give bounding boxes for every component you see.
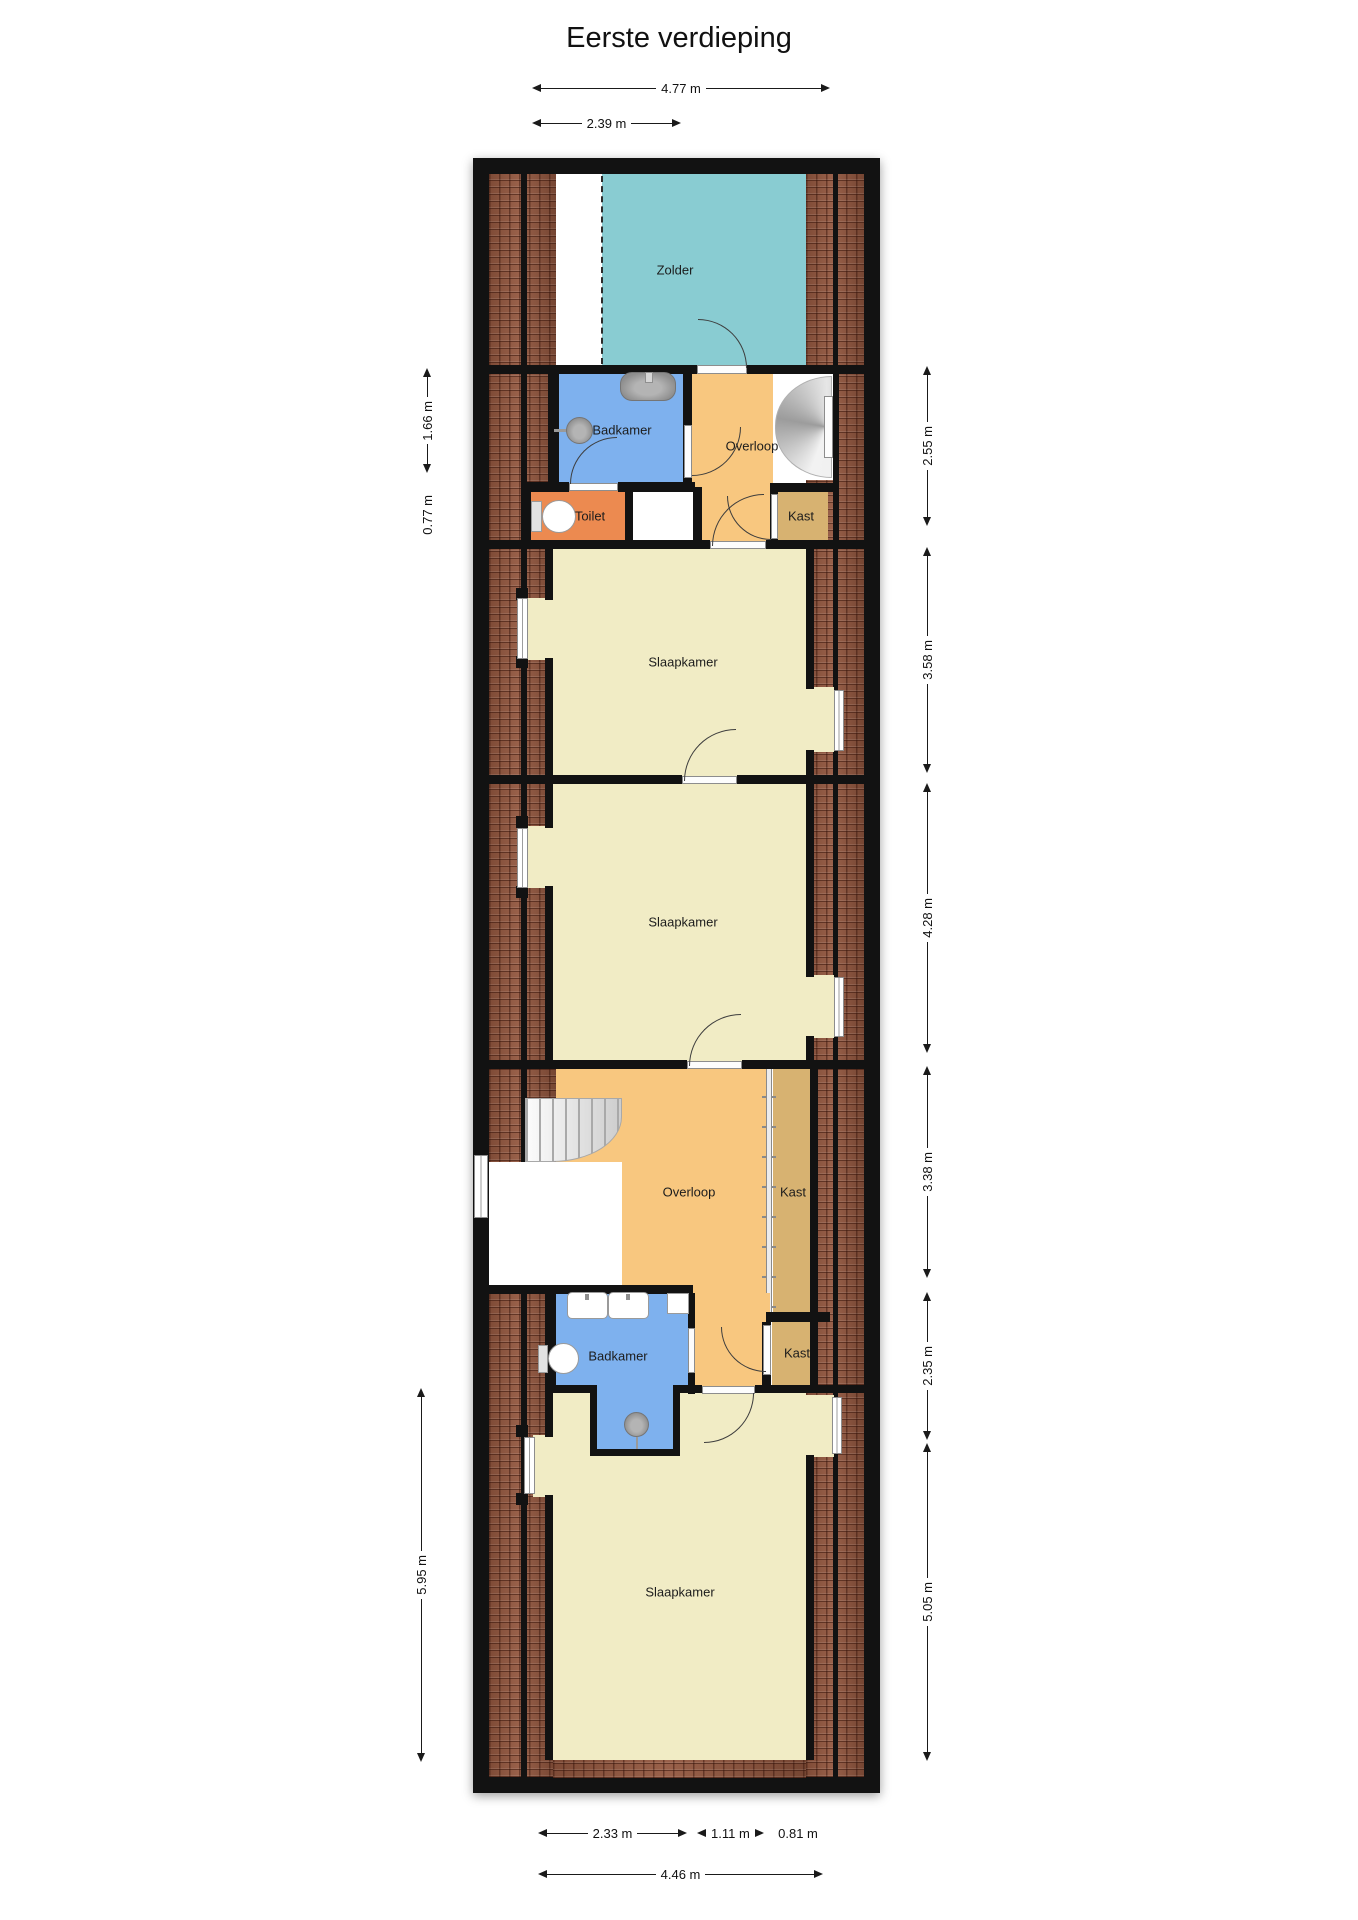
door-badkamer1-toilethal [569, 483, 618, 491]
dimension-bottom-111: 1.11 m [697, 1826, 765, 1840]
wall-s3-left-b [545, 1495, 553, 1760]
room-label-zolder: Zolder [657, 263, 694, 278]
wall-shower-nook-bottom [590, 1449, 680, 1456]
wall-sec3-bottom-a [489, 775, 682, 784]
room-label-kast-3: Kast [780, 1185, 806, 1200]
toilet-icon [542, 500, 576, 533]
wall-s1-right-a [806, 548, 814, 689]
wall-badkamer2-left [545, 1285, 556, 1393]
wall-sec2-bottom-b [766, 540, 864, 549]
window-icon [834, 690, 844, 751]
room-label-toilet: Toilet [575, 509, 605, 524]
arrow-left-icon [697, 1829, 706, 1837]
wall-sec4-bottom-b [742, 1060, 864, 1069]
wall-kast3-bottom [766, 1312, 830, 1322]
wall-s2-left-b [545, 886, 553, 1061]
slaapkamer-2-dormer-left [528, 826, 553, 888]
arrow-right-icon [672, 119, 681, 127]
slaapkamer-3-dormer-right [806, 1395, 834, 1457]
wall-sec6-bottom-c [755, 1385, 864, 1393]
arrow-right-icon [755, 1829, 764, 1837]
wall-s3-left-a [545, 1393, 553, 1437]
headroom-dashed-line [601, 176, 603, 364]
door-kast1 [771, 494, 778, 539]
arrow-up-icon [923, 1292, 931, 1301]
room-label-badkamer-1: Badkamer [592, 423, 651, 438]
arrow-left-icon [532, 119, 541, 127]
arrow-up-icon [417, 1388, 425, 1397]
window-icon [474, 1155, 488, 1218]
floor-plan-page: Eerste verdieping [0, 0, 1358, 1920]
slaapkamer-3-dormer-left [533, 1435, 553, 1497]
wall-s3-win-stub-bot [516, 1493, 528, 1505]
arrow-down-icon [923, 517, 931, 526]
room-label-overloop-2: Overloop [663, 1185, 716, 1200]
room-label-badkamer-2: Badkamer [588, 1349, 647, 1364]
wall-s2-right-b [806, 1036, 814, 1061]
roof-tiles-bottom [553, 1758, 806, 1778]
dimension-right-428: 4.28 m [920, 783, 934, 1053]
faucet-icon [626, 1294, 630, 1300]
wall-s1-left-b [545, 658, 553, 776]
dimension-bottom-081: 0.81 m [773, 1826, 823, 1840]
arrow-down-icon [923, 1431, 931, 1440]
dimension-right-358: 3.58 m [920, 547, 934, 773]
arrow-left-icon [538, 1870, 547, 1878]
wall-kast1-top [770, 483, 838, 492]
dimension-right-338: 3.38 m [920, 1066, 934, 1278]
dimension-top-239: 2.39 m [532, 116, 681, 130]
wall-shower-nook-left [590, 1385, 597, 1456]
dimension-top-477: 4.77 m [532, 81, 830, 95]
spiral-stair-railing [824, 396, 833, 458]
wall-s2-right-a [806, 783, 814, 977]
wall-s3-right [806, 1455, 814, 1760]
room-label-slaapkamer-2: Slaapkamer [648, 915, 717, 930]
roof-ridge-left [521, 174, 527, 1777]
wall-spiral-right [833, 365, 839, 548]
dimension-right-235: 2.35 m [920, 1292, 934, 1440]
arrow-left-icon [532, 84, 541, 92]
arrow-down-icon [417, 1753, 425, 1762]
wall-toilet-left [523, 482, 531, 542]
arrow-left-icon [538, 1829, 547, 1837]
window-icon [832, 1397, 842, 1454]
shaft-room [633, 491, 693, 541]
shower-arm [636, 1437, 638, 1449]
arrow-down-icon [923, 764, 931, 773]
arrow-down-icon [923, 1752, 931, 1761]
wall-s3-win-stub-top [516, 1425, 528, 1437]
page-title: Eerste verdieping [0, 22, 1358, 55]
window-icon [517, 828, 528, 888]
wall-zolder-bottom-right [747, 365, 864, 374]
wall-s1-left-a [545, 548, 553, 600]
arrow-down-icon [923, 1044, 931, 1053]
dimension-right-505: 5.05 m [920, 1443, 934, 1761]
room-label-kast-2: Kast [784, 1346, 810, 1361]
toilet-tank [531, 501, 542, 532]
wall-toilet-shaft-divider [625, 491, 633, 541]
wall-s1-right-b [806, 750, 814, 776]
window-icon [834, 977, 844, 1037]
arrow-down-icon [923, 1269, 931, 1278]
wall-s2-left-a [545, 783, 553, 828]
shower-head-icon [624, 1412, 649, 1437]
faucet-icon [645, 372, 653, 383]
arrow-down-icon [423, 464, 431, 473]
wall-sec4-bottom-a [489, 1060, 687, 1069]
window-icon [524, 1437, 535, 1494]
dimension-left-166: 1.66 m [420, 368, 434, 473]
room-label-slaapkamer-3: Slaapkamer [645, 1585, 714, 1600]
zolder-low-headroom [556, 174, 602, 365]
arrow-right-icon [678, 1829, 687, 1837]
slaapkamer-2-dormer-right [806, 975, 834, 1038]
slaapkamer-1-dormer-right [806, 687, 834, 752]
shower-head-icon [566, 417, 593, 444]
room-label-slaapkamer-1: Slaapkamer [648, 655, 717, 670]
faucet-icon [585, 1294, 589, 1300]
wall-sec2-bottom-a [489, 540, 710, 549]
arrow-up-icon [923, 1443, 931, 1452]
arrow-up-icon [923, 1066, 931, 1075]
wall-kast3-right [810, 1068, 818, 1386]
dimension-left-077: 0.77 m [420, 488, 434, 541]
window-icon [517, 598, 528, 659]
wall-s2-win-stub-top [516, 816, 528, 828]
arrow-right-icon [814, 1870, 823, 1878]
stairwell-void [489, 1162, 622, 1285]
door-badkamer2-overloop [688, 1328, 695, 1373]
arrow-right-icon [821, 84, 830, 92]
dimension-right-255: 2.55 m [920, 366, 934, 526]
dimension-bottom-446: 4.46 m [538, 1867, 823, 1881]
dimension-left-595: 5.95 m [414, 1388, 428, 1762]
wall-shaft-right [693, 487, 702, 542]
door-badkamer1-overloop [684, 425, 692, 478]
wall-sec3-bottom-b [737, 775, 864, 784]
toilet-icon [548, 1343, 579, 1374]
dimension-bottom-233: 2.33 m [538, 1826, 687, 1840]
folding-door-icon [766, 1068, 772, 1313]
wall-shower-nook-right [673, 1385, 680, 1456]
room-label-kast-1: Kast [788, 509, 814, 524]
arrow-up-icon [923, 783, 931, 792]
arrow-up-icon [923, 547, 931, 556]
toilet-tank [538, 1345, 548, 1373]
room-label-overloop-1: Overloop [726, 439, 779, 454]
slaapkamer-1-dormer-left [528, 598, 553, 660]
bathroom-cabinet [667, 1293, 689, 1314]
arrow-up-icon [923, 366, 931, 375]
arrow-up-icon [423, 368, 431, 377]
